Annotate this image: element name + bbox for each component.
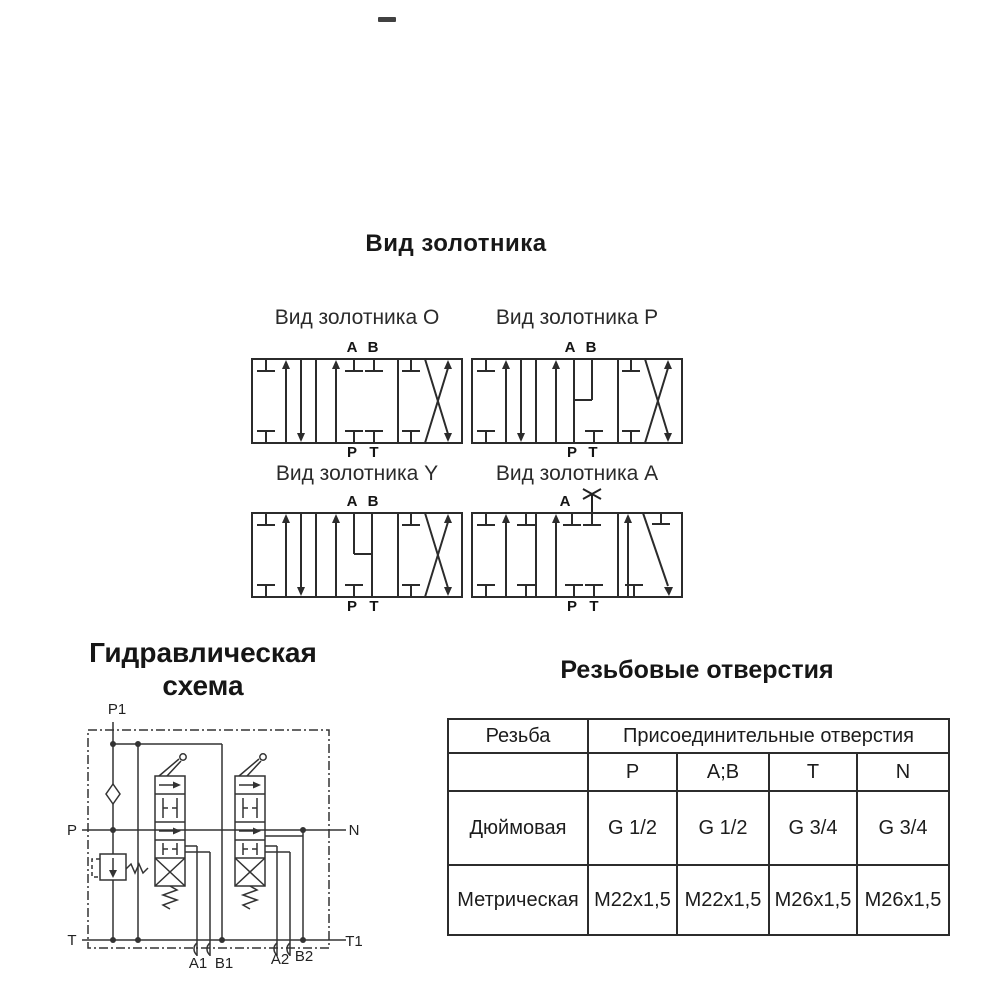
- table-row: Дюймовая G 1/2 G 1/2 G 3/4 G 3/4: [448, 791, 949, 865]
- valve-p-bottom-ports: P T: [471, 444, 683, 462]
- port-label-a: A: [347, 339, 358, 356]
- table-header-port-n: N: [857, 753, 949, 791]
- valve-symbol-spool-a: [471, 512, 683, 598]
- valve-a-caption: Вид золотника A: [471, 462, 683, 486]
- port-label-p: P: [567, 444, 577, 461]
- valve-a-bottom-ports: P T: [471, 598, 683, 616]
- label-n: N: [349, 822, 360, 839]
- label-a2: A2: [271, 951, 289, 968]
- valve-symbol-spool-p: [471, 358, 683, 444]
- port-label-a: A: [560, 493, 571, 510]
- hydraulic-scheme-title: Гидравлическая схема: [30, 636, 376, 702]
- cell-inch-ab: G 1/2: [677, 791, 769, 865]
- label-p1: P1: [108, 701, 126, 718]
- label-a1: A1: [189, 955, 207, 972]
- table-header-port-ab: A;B: [677, 753, 769, 791]
- port-label-b: B: [368, 339, 379, 356]
- port-label-t: T: [369, 598, 378, 615]
- table-header-port-t: T: [769, 753, 857, 791]
- port-label-a: A: [347, 493, 358, 510]
- cell-inch-p: G 1/2: [588, 791, 677, 865]
- crossed-port-icon: [581, 487, 603, 512]
- threads-table: Резьба Присоединительные отверстия P A;B…: [447, 718, 950, 936]
- valve-section-1: [155, 754, 210, 956]
- table-header-group: Присоединительные отверстия: [588, 719, 949, 753]
- port-label-p: P: [567, 598, 577, 615]
- label-t1: T1: [345, 933, 363, 950]
- check-valve-icon: [106, 784, 120, 804]
- valve-section-2: [235, 754, 290, 956]
- port-label-t: T: [588, 444, 597, 461]
- valve-o-top-ports: A B: [251, 339, 463, 357]
- valve-o-caption: Вид золотника O: [251, 306, 463, 330]
- port-label-b: B: [586, 339, 597, 356]
- label-p: P: [67, 822, 77, 839]
- port-label-b: B: [368, 493, 379, 510]
- port-label-t: T: [589, 598, 598, 615]
- cell-metric-t: M26x1,5: [769, 865, 857, 935]
- threads-table-title: Резьбовые отверстия: [445, 656, 949, 685]
- relief-valve-icon: [92, 854, 148, 880]
- enclosure-border: [88, 730, 329, 948]
- table-row: Метрическая M22x1,5 M22x1,5 M26x1,5 M26x…: [448, 865, 949, 935]
- feed-lines: [113, 744, 222, 940]
- row-label-inch: Дюймовая: [448, 791, 588, 865]
- document-page: Вид золотника Вид золотника O A B P T Ви…: [0, 0, 1000, 1000]
- scan-artifact-dash: [378, 17, 396, 22]
- port-label-a: A: [565, 339, 576, 356]
- label-t: T: [67, 932, 76, 949]
- cell-metric-n: M26x1,5: [857, 865, 949, 935]
- cell-inch-t: G 3/4: [769, 791, 857, 865]
- spool-section-title: Вид золотника: [306, 230, 606, 258]
- table-cell-empty: [448, 753, 588, 791]
- valve-p-top-ports: A B: [471, 339, 683, 357]
- cell-metric-ab: M22x1,5: [677, 865, 769, 935]
- valve-a-top-ports: A: [471, 493, 683, 511]
- cell-inch-n: G 3/4: [857, 791, 949, 865]
- hydraulic-circuit-diagram: P1 P N T T1 A1 B1 A2 B2: [62, 698, 372, 976]
- label-b2: B2: [295, 948, 313, 965]
- valve-y-top-ports: A B: [251, 493, 463, 511]
- valve-symbol-spool-o: [251, 358, 463, 444]
- port-label-p: P: [347, 444, 357, 461]
- cell-metric-p: M22x1,5: [588, 865, 677, 935]
- hydraulic-scheme-title-line1: Гидравлическая: [30, 636, 376, 669]
- row-label-metric: Метрическая: [448, 865, 588, 935]
- valve-symbol-spool-y: [251, 512, 463, 598]
- port-label-p: P: [347, 598, 357, 615]
- label-b1: B1: [215, 955, 233, 972]
- valve-y-caption: Вид золотника Y: [251, 462, 463, 486]
- valve-p-caption: Вид золотника P: [471, 306, 683, 330]
- valve-o-bottom-ports: P T: [251, 444, 463, 462]
- table-header-port-p: P: [588, 753, 677, 791]
- table-header-thread: Резьба: [448, 719, 588, 753]
- valve-y-bottom-ports: P T: [251, 598, 463, 616]
- port-label-t: T: [369, 444, 378, 461]
